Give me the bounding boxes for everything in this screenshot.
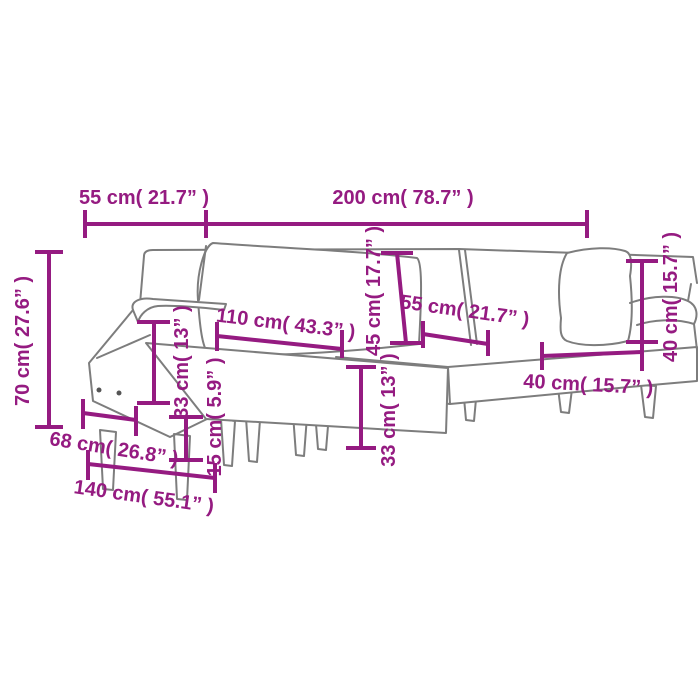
label-15: 15 cm( 5.9” ) [204,358,226,477]
button-dot [97,388,102,393]
diagram-canvas: 55 cm( 21.7” ) 200 cm( 78.7” ) 70 cm( 27… [0,0,700,700]
label-55-top: 55 cm( 21.7” ) [79,187,209,209]
sofa-backrest-left-edge [140,256,144,304]
label-45: 45 cm( 17.7” ) [363,226,385,356]
dimension-diagram: 55 cm( 21.7” ) 200 cm( 78.7” ) 70 cm( 27… [0,0,700,700]
label-33-left: 33 cm( 13” ) [171,305,193,418]
label-33-mid: 33 cm( 13” ) [378,353,400,466]
dim-line-55-mid [423,334,488,344]
sofa-leg [246,418,260,462]
button-dot [117,391,122,396]
sofa-left-arm-seam [97,335,150,358]
label-40-v: 40 cm( 15.7” ) [660,232,682,362]
sofa-backrest-seam [459,250,477,345]
sofa-right-pillow [559,248,632,345]
label-70-left: 70 cm( 27.6” ) [12,276,34,406]
label-140: 140 cm( 55.1” ) [72,476,215,517]
label-200-top: 200 cm( 78.7” ) [332,187,473,209]
